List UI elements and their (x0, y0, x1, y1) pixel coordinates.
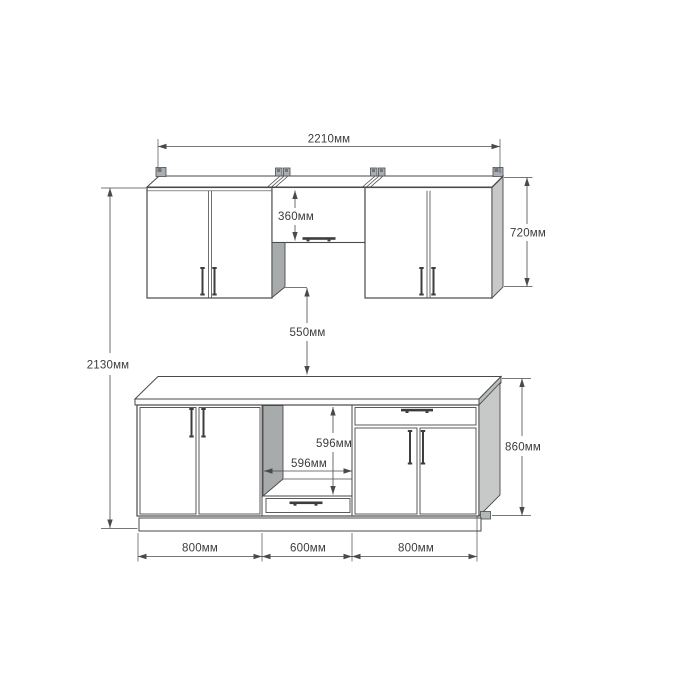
cabinet-foot (481, 512, 491, 520)
wall-end-panel (492, 177, 503, 299)
dim-total-width: 2210мм (158, 134, 500, 174)
dim-total-height-label: 2130мм (87, 360, 130, 372)
dim-base-left-width-label: 800мм (182, 543, 218, 555)
kitchen-dimension-drawing: 2210мм 720мм 360мм 550мм (0, 0, 700, 700)
mounting-bracket-left (156, 168, 166, 177)
dim-base-height-label: 860мм (505, 442, 541, 454)
wall-cabinet-top-surface (147, 176, 503, 187)
base-end-panel (479, 383, 500, 516)
dim-wall-height-label: 720мм (510, 228, 546, 240)
dim-niche-width-label: 596мм (291, 458, 327, 470)
dim-niche-height-label: 596мм (316, 438, 352, 450)
wall-cabinet-right (365, 188, 492, 299)
dim-gap: 550мм (286, 288, 326, 375)
countertop-front-edge (135, 399, 479, 405)
dim-base-middle-width-label: 600мм (290, 543, 326, 555)
dim-wall-mid-height-label: 360мм (278, 211, 314, 223)
drawing-canvas: 2210мм 720мм 360мм 550мм (0, 0, 700, 700)
wall-cabinets (147, 168, 503, 299)
plinth (139, 518, 481, 531)
wall-cabinet-left (147, 188, 272, 299)
mounting-bracket-pair-right (371, 168, 386, 176)
mounting-bracket-right (493, 168, 503, 177)
countertop-surface (135, 377, 501, 400)
base-cabinets (135, 377, 501, 532)
dim-base-right-width-label: 800мм (398, 543, 434, 555)
niche-side-panel (272, 243, 285, 298)
dim-wall-height: 720мм (504, 178, 546, 287)
dim-gap-label: 550мм (290, 327, 326, 339)
dim-total-width-label: 2210мм (308, 134, 351, 146)
mounting-bracket-pair-left (276, 168, 291, 176)
